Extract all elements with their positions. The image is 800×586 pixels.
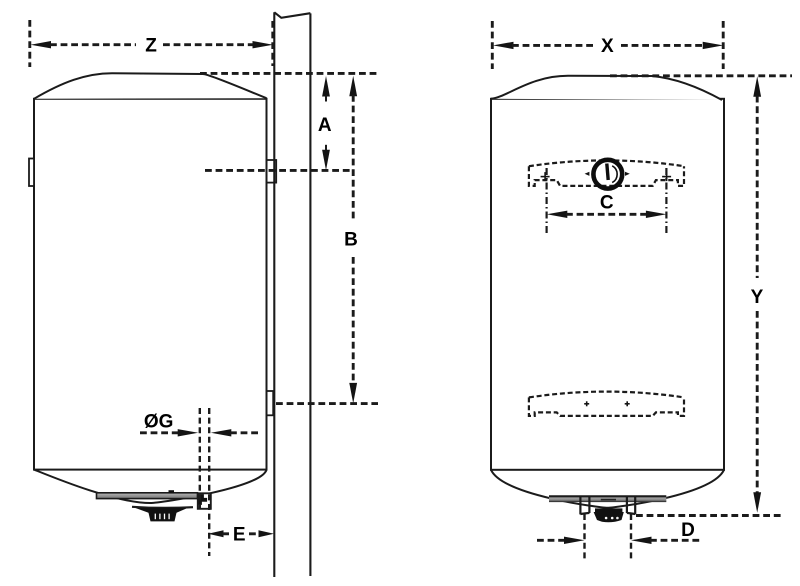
svg-text:E: E <box>233 525 246 546</box>
svg-text:X: X <box>601 36 614 57</box>
svg-text:D: D <box>681 520 695 541</box>
svg-text:B: B <box>344 230 358 251</box>
svg-text:A: A <box>318 115 332 136</box>
svg-text:C: C <box>600 192 614 213</box>
svg-text:Z: Z <box>145 35 157 56</box>
svg-text:Y: Y <box>751 287 764 308</box>
svg-text:ØG: ØG <box>144 411 174 432</box>
